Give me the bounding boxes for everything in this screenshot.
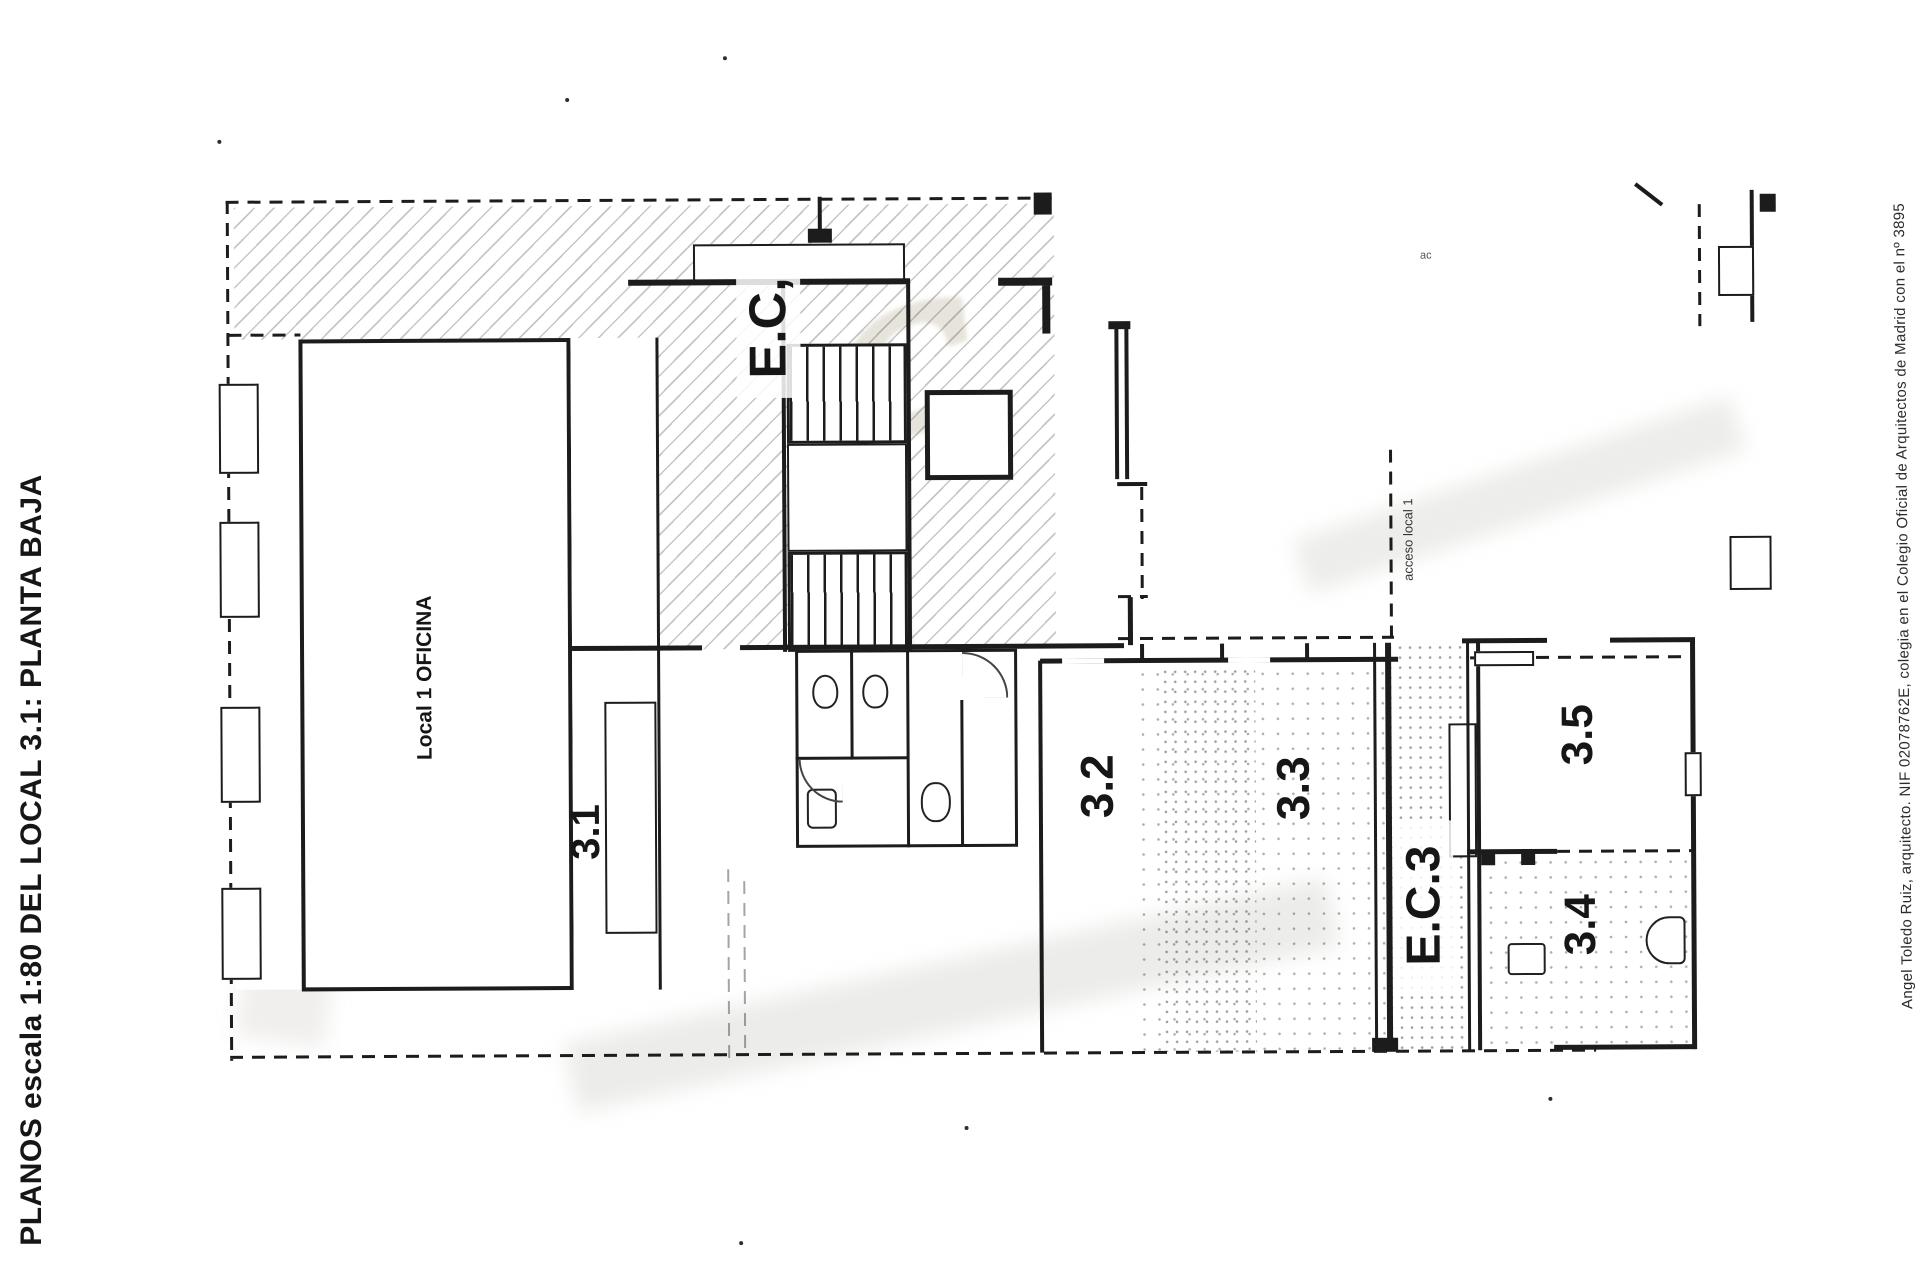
scan-speck xyxy=(565,98,569,102)
boundary-dashed-top xyxy=(226,197,1052,204)
boundary-dashed-stub xyxy=(1698,204,1702,326)
wall-pier xyxy=(1760,194,1776,212)
speckle-strip xyxy=(1160,666,1257,1051)
wall-pier xyxy=(1108,321,1130,329)
wall-pier xyxy=(808,229,832,243)
entry-recess-dashed xyxy=(1140,487,1144,599)
wall-stub xyxy=(1140,644,1144,660)
wall xyxy=(1042,286,1050,334)
toilet-icon xyxy=(812,675,838,709)
toilet-icon xyxy=(862,674,888,708)
wall xyxy=(1554,1044,1696,1050)
wall-stub xyxy=(1305,643,1309,659)
wall-pier xyxy=(1372,1038,1398,1052)
door-opening xyxy=(1228,657,1270,662)
window xyxy=(221,888,261,980)
label-stair-core-3: E.C.3 xyxy=(1393,820,1454,990)
wall xyxy=(572,645,702,651)
wall xyxy=(1610,637,1695,642)
label-zone-3-3: 3.3 xyxy=(1264,733,1321,843)
boundary-dashed-stub xyxy=(228,333,300,336)
door-opening xyxy=(1062,658,1104,663)
scan-speck xyxy=(217,140,221,144)
elevator-shaft xyxy=(925,390,1013,480)
window xyxy=(1474,651,1534,666)
scan-streak xyxy=(743,881,746,1053)
stair-flight xyxy=(788,551,909,652)
sink-icon xyxy=(1508,943,1546,975)
wall xyxy=(1117,482,1147,486)
label-office: Local 1 OFICINA xyxy=(405,613,446,743)
scan-speck xyxy=(723,56,727,60)
boundary-dashed-mid xyxy=(1118,636,1394,640)
stair-mid-landing xyxy=(787,443,908,552)
door-jamb xyxy=(1521,853,1535,865)
wall xyxy=(1114,327,1119,479)
label-zone-3-2: 3.2 xyxy=(1068,731,1125,841)
wall xyxy=(1690,639,1697,1049)
label-access-note: acceso local 1 xyxy=(1398,480,1417,600)
partition xyxy=(850,650,854,760)
window xyxy=(219,384,259,474)
window xyxy=(219,522,260,618)
scan-smudge xyxy=(1292,396,1746,594)
floor-plan: f xyxy=(0,0,1920,1280)
window xyxy=(220,707,261,803)
scanned-plan-page: PLANOS escala 1:80 DEL LOCAL 3.1: PLANTA… xyxy=(0,0,1920,1280)
wall-tick xyxy=(1634,182,1663,206)
label-zone-3-1: 3.1 xyxy=(561,787,611,877)
scan-streak xyxy=(727,869,730,1061)
corridor-pocket xyxy=(604,702,657,934)
window xyxy=(1729,536,1771,590)
wall xyxy=(1124,327,1129,479)
toilet-icon xyxy=(921,782,951,822)
wall-stub xyxy=(1220,644,1224,660)
access-path-dashed xyxy=(1389,450,1393,638)
wall xyxy=(1462,638,1547,643)
label-zone-3-4: 3.4 xyxy=(1554,872,1609,977)
wall xyxy=(998,278,1052,286)
window xyxy=(1685,752,1702,796)
wall xyxy=(740,643,1124,650)
label-tiny-note: ac xyxy=(1420,250,1432,262)
door-jamb xyxy=(1481,853,1495,865)
stair-flight xyxy=(786,343,907,444)
scan-speck xyxy=(965,1126,969,1130)
label-zone-3-5: 3.5 xyxy=(1551,682,1606,787)
wall-dashed xyxy=(1557,849,1693,853)
wall-pier xyxy=(1034,193,1052,215)
scan-speck xyxy=(1548,1097,1552,1101)
label-stair-core: E.C, xyxy=(736,258,801,398)
wall xyxy=(1038,661,1044,1053)
scan-speck xyxy=(739,1241,743,1245)
plan-title: PLANOS escala 1:80 DEL LOCAL 3.1: PLANTA… xyxy=(12,445,52,1275)
wall xyxy=(1476,640,1482,1050)
wall xyxy=(1128,597,1133,645)
window xyxy=(1718,246,1754,296)
